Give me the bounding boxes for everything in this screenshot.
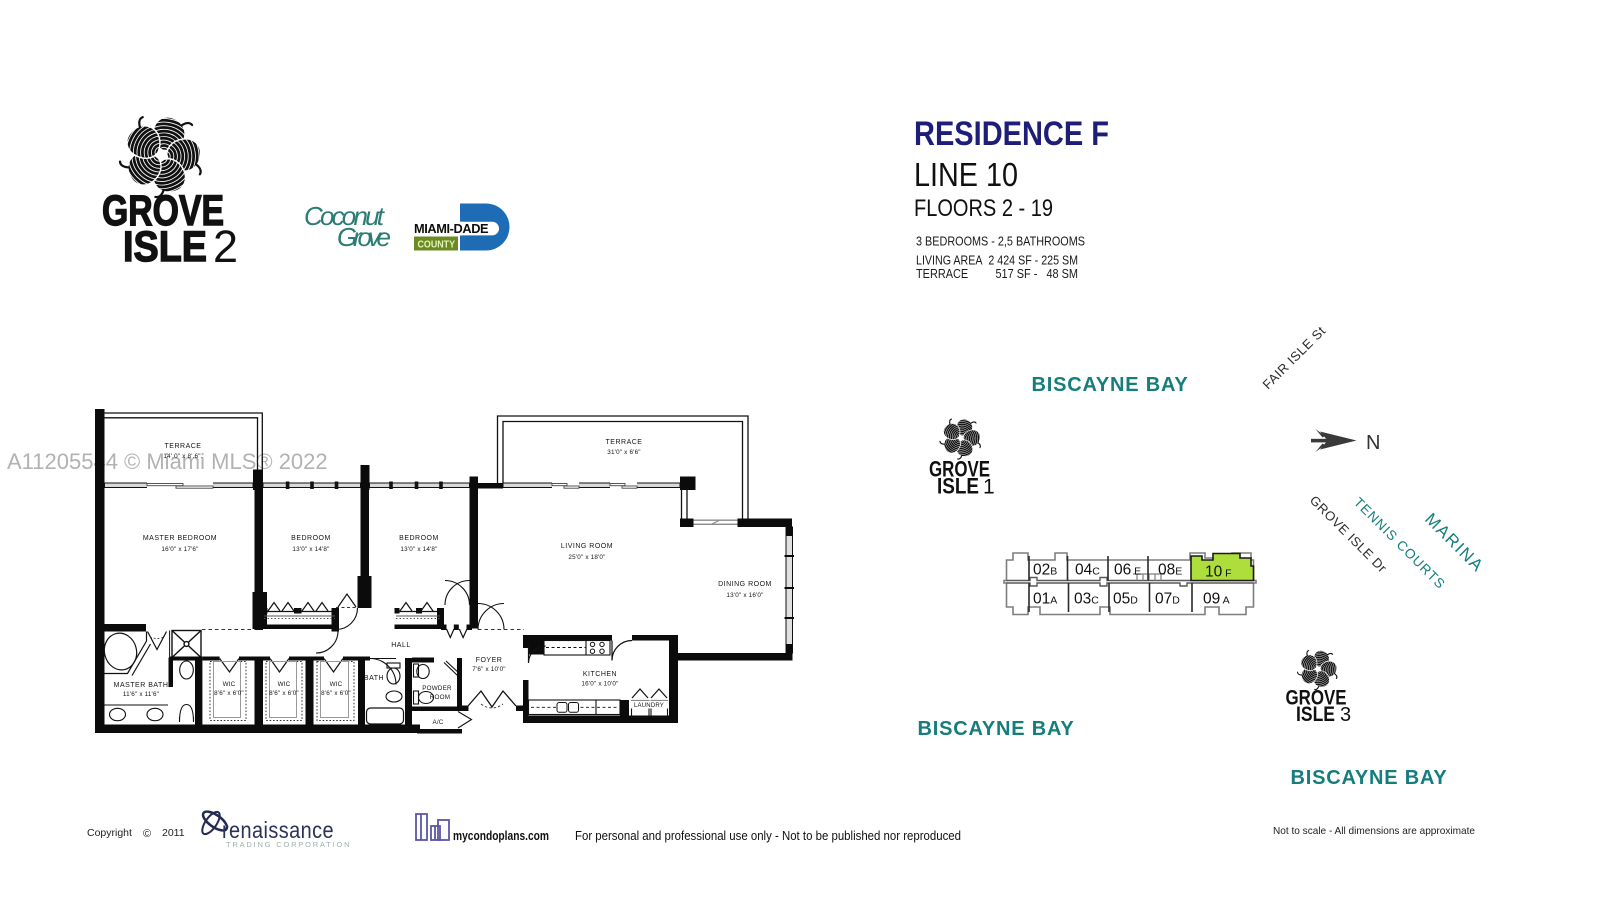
svg-text:TERRACE: TERRACE [165,443,202,450]
svg-text:FOYER: FOYER [476,657,503,664]
svg-text:ISLE: ISLE [937,474,979,499]
svg-text:N: N [1366,432,1380,454]
svg-text:2: 2 [213,221,238,272]
svg-text:BISCAYNE BAY: BISCAYNE BAY [917,718,1074,740]
svg-text:04C: 04C [1075,562,1100,579]
svg-text:RESIDENCE F: RESIDENCE F [914,115,1109,153]
svg-text:25'0" x 18'0": 25'0" x 18'0" [568,554,605,561]
svg-text:TRADING CORPORATION: TRADING CORPORATION [226,840,351,849]
svg-text:16'0" x 10'0": 16'0" x 10'0" [581,681,618,688]
svg-text:For personal and professional: For personal and professional use only -… [575,828,961,843]
svg-text:11'6" x 11'6": 11'6" x 11'6" [123,691,159,698]
svg-text:13'0" x 14'8": 13'0" x 14'8" [400,546,437,553]
svg-text:ISLE: ISLE [123,223,207,271]
svg-text:BISCAYNE BAY: BISCAYNE BAY [1290,767,1447,789]
svg-text:13'0" x 14'8": 13'0" x 14'8" [292,546,329,553]
svg-text:01A: 01A [1033,591,1057,608]
svg-text:DINING ROOM: DINING ROOM [718,581,772,588]
svg-text:07D: 07D [1155,591,1180,608]
svg-text:16'0" x 17'6": 16'0" x 17'6" [161,546,198,553]
svg-text:LAUNDRY: LAUNDRY [634,703,664,709]
svg-text:BEDROOM: BEDROOM [399,535,439,542]
svg-text:BEDROOM: BEDROOM [291,535,331,542]
svg-text:LIVING ROOM: LIVING ROOM [561,543,613,550]
svg-text:08E: 08E [1158,562,1182,579]
svg-text:ISLE: ISLE [1296,703,1335,726]
svg-text:14'.0" x 8'.6".: 14'.0" x 8'.6". [163,453,202,460]
svg-text:LIVING AREA 2 424 SF - 225 SM: LIVING AREA 2 424 SF - 225 SM [916,254,1078,268]
svg-text:2011: 2011 [162,827,185,839]
svg-text:13'0" x 16'0": 13'0" x 16'0" [726,592,763,599]
svg-text:1: 1 [983,476,995,499]
svg-text:31'0" x 6'6": 31'0" x 6'6" [607,449,640,456]
svg-text:MASTER BEDROOM: MASTER BEDROOM [143,535,217,542]
svg-text:03C: 03C [1074,591,1099,608]
svg-text:TERRACE: TERRACE [606,439,643,446]
svg-text:GROVE ISLE Dr: GROVE ISLE Dr [1307,493,1390,576]
svg-text:TERRACE 517 SF - 48: TERRACE 517 SF - 48 SM [916,267,1078,281]
svg-text:BATH: BATH [364,675,384,682]
svg-text:mycondoplans.com: mycondoplans.com [453,829,549,843]
svg-text:LINE 10: LINE 10 [914,156,1018,193]
svg-text:HALL: HALL [391,642,411,649]
svg-text:MASTER BATH: MASTER BATH [114,682,169,689]
svg-text:COUNTY: COUNTY [418,240,456,251]
svg-text:7'6" x 10'0": 7'6" x 10'0" [472,666,505,673]
svg-text:Copyright: Copyright [87,827,132,839]
svg-text:WIC: WIC [278,681,291,688]
svg-text:8'6" x 6'0": 8'6" x 6'0" [269,690,299,697]
svg-text:Grove: Grove [337,222,391,252]
svg-text:FLOORS 2 - 19: FLOORS 2 - 19 [914,195,1053,222]
svg-text:05D: 05D [1113,591,1138,608]
svg-text:A/C: A/C [432,719,443,726]
svg-text:06 E: 06 E [1114,562,1141,579]
svg-text:8'6" x 6'0": 8'6" x 6'0" [214,690,244,697]
svg-text:KITCHEN: KITCHEN [583,671,617,678]
svg-text:©: © [143,828,151,840]
svg-text:02B: 02B [1033,562,1057,579]
svg-text:ROOM: ROOM [430,694,450,701]
svg-text:BISCAYNE BAY: BISCAYNE BAY [1031,374,1188,396]
svg-text:WIC: WIC [223,681,236,688]
svg-text:WIC: WIC [330,681,343,688]
svg-text:MIAMI-DADE: MIAMI-DADE [414,221,489,236]
svg-text:Not to scale - All dimensions: Not to scale - All dimensions are approx… [1273,825,1475,837]
svg-text:POWDER: POWDER [422,685,452,692]
svg-text:FAIR ISLE St: FAIR ISLE St [1260,323,1329,392]
svg-text:09 A: 09 A [1203,591,1230,608]
svg-text:3 BEDROOMS - 2,5 BATHROOMS: 3 BEDROOMS - 2,5 BATHROOMS [916,235,1085,249]
svg-text:3: 3 [1340,704,1351,726]
svg-text:8'6" x 6'0": 8'6" x 6'0" [321,690,351,697]
